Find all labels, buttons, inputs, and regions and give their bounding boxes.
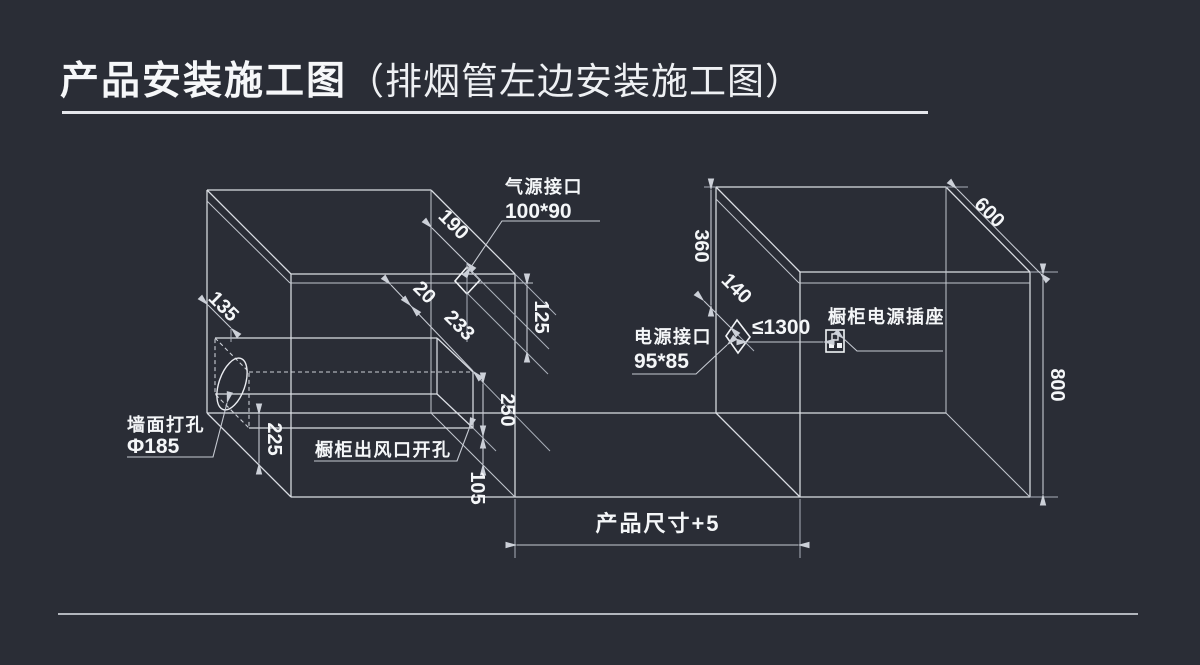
- left-cabinet-duct: [211, 338, 473, 428]
- power-connector-size: 95*85: [634, 350, 689, 373]
- dim-product-size: 产品尺寸+5: [595, 511, 720, 536]
- dim-800: 800: [1046, 368, 1068, 401]
- wall-hole-ellipse: [211, 354, 253, 414]
- power-connector-label: 电源接口: [634, 326, 712, 347]
- dim-105: 105: [466, 471, 488, 504]
- dim-140: 140: [717, 269, 756, 308]
- outlet-cutout-label: 橱柜出风口开孔: [315, 439, 452, 460]
- installation-diagram: 气源接口 100*90 190 20 233 135 125 225 250 1…: [0, 0, 1200, 665]
- gas-leader-line: [471, 221, 600, 267]
- right-cabinet-extension-lines: [704, 187, 1058, 558]
- wall-hole-size: Φ185: [127, 435, 180, 458]
- wall-hole-region: [215, 338, 249, 428]
- dim-max-1300: ≤1300: [752, 316, 810, 339]
- gas-connector-size: 100*90: [505, 200, 572, 223]
- dim-135: 135: [204, 287, 243, 326]
- dim-225: 225: [263, 422, 285, 455]
- power-socket-icon: [826, 330, 844, 352]
- dim-360: 360: [690, 229, 712, 262]
- dim-20: 20: [409, 277, 440, 308]
- gas-connector-label: 气源接口: [504, 176, 583, 197]
- socket-label: 橱柜电源插座: [828, 306, 945, 327]
- dim-233: 233: [440, 306, 479, 345]
- power-connector-icon: [726, 320, 750, 353]
- wall-hole-label: 墙面打孔: [127, 414, 205, 435]
- socket-leader-line: [844, 339, 943, 351]
- dim-125: 125: [530, 300, 552, 333]
- dim-250: 250: [496, 393, 518, 426]
- dim-190: 190: [434, 205, 473, 244]
- product-size-dimension: 产品尺寸+5: [517, 511, 798, 545]
- dim-600: 600: [970, 193, 1009, 232]
